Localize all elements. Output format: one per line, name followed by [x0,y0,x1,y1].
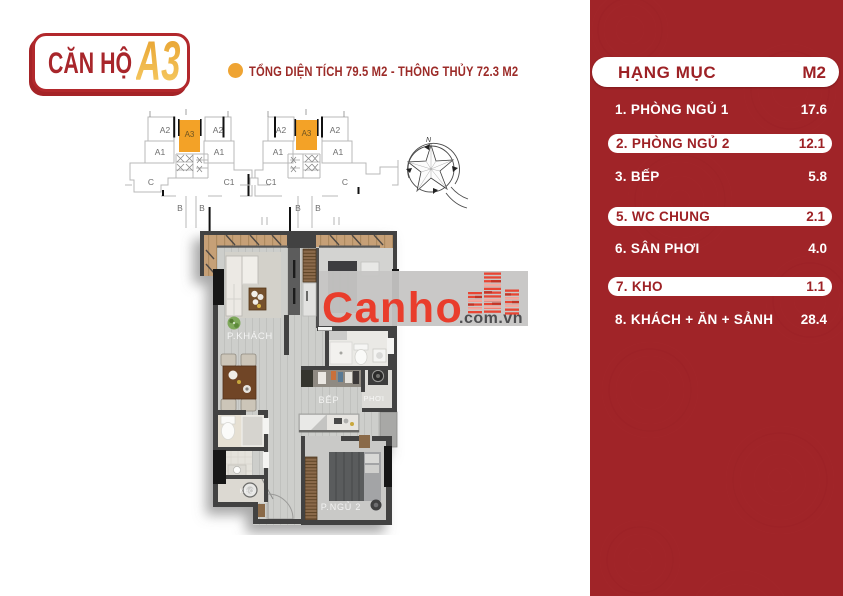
svg-text:A3: A3 [302,129,312,138]
svg-text:C: C [342,177,348,187]
svg-text:A1: A1 [333,147,344,157]
svg-text:A1: A1 [155,147,166,157]
svg-text:P.NGỦ 2: P.NGỦ 2 [321,501,361,512]
svg-text:A2: A2 [330,125,341,135]
svg-text:A2: A2 [276,125,287,135]
svg-text:C1: C1 [266,177,277,187]
svg-text:C: C [148,177,154,187]
svg-text:BẾP: BẾP [318,395,339,405]
svg-text:C1: C1 [224,177,235,187]
svg-text:P.KHÁCH: P.KHÁCH [227,331,273,342]
svg-text:KHO: KHO [240,489,255,495]
svg-text:A2: A2 [213,125,224,135]
svg-text:PHƠI: PHƠI [364,394,385,403]
svg-text:A3: A3 [185,130,195,139]
svg-text:A1: A1 [214,147,225,157]
svg-text:A1: A1 [273,147,284,157]
svg-text:A2: A2 [160,125,171,135]
svg-text:N: N [426,137,432,144]
